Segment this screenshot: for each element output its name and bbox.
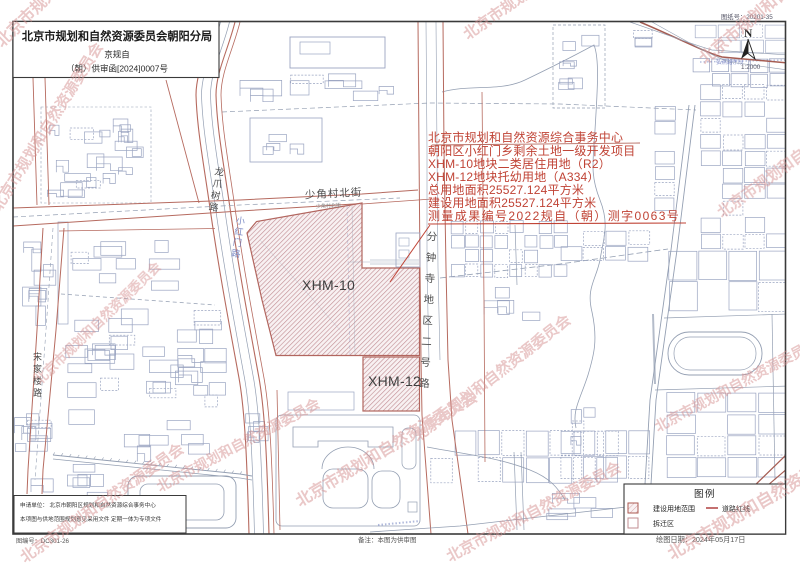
svg-text:红: 红 <box>234 225 244 237</box>
svg-text:门: 门 <box>232 236 242 248</box>
svg-text:分: 分 <box>427 231 439 244</box>
svg-text:路: 路 <box>231 247 241 259</box>
svg-text:备注：本图为供审图: 备注：本图为供审图 <box>358 535 417 544</box>
svg-text:XHM-10: XHM-10 <box>302 277 355 293</box>
svg-text:二: 二 <box>421 336 432 349</box>
svg-text:路: 路 <box>33 387 42 398</box>
svg-text:XHM-10地块二类居住用地（R2）: XHM-10地块二类居住用地（R2） <box>428 157 611 171</box>
svg-text:建设用地范围: 建设用地范围 <box>653 504 695 513</box>
svg-text:建设用地面积25527.124平方米: 建设用地面积25527.124平方米 <box>428 195 596 210</box>
svg-text:朝阳区小红门乡剩余土地一级开发项目: 朝阳区小红门乡剩余土地一级开发项目 <box>428 143 635 158</box>
svg-text:北京市规划和自然资源综合事务中心: 北京市规划和自然资源综合事务中心 <box>428 130 623 145</box>
svg-text:XHM-12: XHM-12 <box>368 373 421 389</box>
svg-text:号: 号 <box>420 357 431 370</box>
svg-text:图例: 图例 <box>694 488 716 500</box>
svg-text:1:2000: 1:2000 <box>741 64 761 71</box>
svg-text:寺: 寺 <box>424 273 435 286</box>
svg-text:地: 地 <box>423 293 435 307</box>
svg-text:北京市规划和自然资源委员会朝阳分局: 北京市规划和自然资源委员会朝阳分局 <box>22 29 212 43</box>
svg-text:钟: 钟 <box>425 251 436 265</box>
svg-text:宋: 宋 <box>33 351 42 362</box>
svg-text:小: 小 <box>235 215 245 226</box>
svg-text:区: 区 <box>422 315 433 328</box>
svg-text:拆迁区: 拆迁区 <box>653 519 674 528</box>
svg-text:少角村北街: 少角村北街 <box>316 202 341 210</box>
svg-text:测量成果编号2022规自（朝）测字0063号: 测量成果编号2022规自（朝）测字0063号 <box>428 208 680 223</box>
svg-text:路: 路 <box>419 377 431 391</box>
svg-text:XHM-12地块托幼用地（A334）: XHM-12地块托幼用地（A334） <box>428 170 600 184</box>
svg-text:京规自: 京规自 <box>104 50 130 60</box>
svg-text:总用地面积25527.124平方米: 总用地面积25527.124平方米 <box>428 182 584 197</box>
